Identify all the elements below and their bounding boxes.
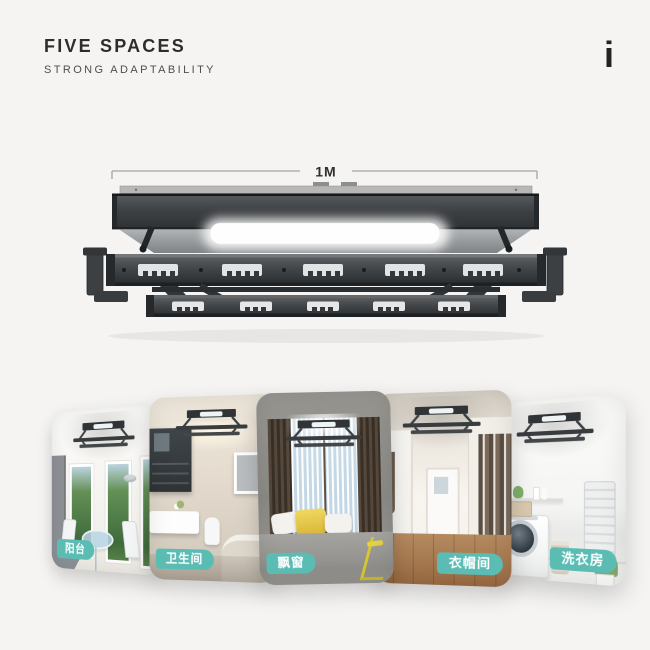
drying-rack-icon — [401, 405, 483, 438]
small-plant — [513, 486, 523, 498]
drying-rack-icon — [174, 408, 249, 439]
pillow-yellow — [295, 508, 328, 536]
product-render: 1M — [0, 158, 650, 348]
lower-hanger-bar — [146, 295, 506, 317]
drying-rack-icon — [515, 411, 596, 447]
ceiling-mount — [120, 182, 532, 194]
drying-rack-illustration: 1M — [0, 158, 650, 348]
drying-rack-icon — [72, 420, 136, 452]
folding-chair-right — [122, 521, 140, 559]
sink-counter — [150, 511, 199, 534]
table-leg — [95, 546, 97, 571]
space-label-badge: 洗衣房 — [550, 547, 616, 574]
space-label-badge: 卫生间 — [156, 548, 214, 570]
ground-shadow — [108, 329, 544, 343]
space-card-balcony: 阳台 — [52, 404, 160, 576]
space-card-cloakroom: 衣帽间 — [374, 390, 511, 588]
led-light-panel — [203, 218, 449, 250]
cabinet-shelves — [152, 455, 189, 484]
dimension-label: 1M — [315, 164, 336, 180]
page-subtitle: STRONG ADAPTABILITY — [44, 64, 216, 76]
door-window — [433, 476, 449, 495]
header-titles: FIVE SPACES STRONG ADAPTABILITY — [44, 36, 216, 76]
hanging-clothes-right — [478, 434, 511, 539]
wall-lamp — [124, 474, 137, 482]
promo-page: FIVE SPACES STRONG ADAPTABILITY i — [0, 0, 650, 650]
flower-vase — [177, 501, 184, 509]
brand-logo: i — [604, 40, 614, 71]
space-label-badge: 阳台 — [57, 538, 94, 560]
plant-pot — [596, 574, 615, 587]
toilet — [205, 517, 220, 545]
upper-hanger-bar — [106, 254, 546, 286]
drying-rack-icon — [284, 419, 365, 451]
pillow-white-right — [325, 513, 352, 533]
page-title: FIVE SPACES — [44, 36, 216, 57]
detergent-bottles — [533, 487, 540, 501]
towel-radiator — [584, 481, 616, 559]
space-card-bay-window: 飘窗 — [256, 391, 394, 586]
cabinet-mirror — [154, 433, 169, 452]
header: FIVE SPACES STRONG ADAPTABILITY i — [44, 36, 614, 76]
spaces-card-fan: 阳台 卫生间 — [0, 386, 650, 611]
towel-stack — [510, 501, 532, 517]
space-label-badge: 飘窗 — [266, 552, 315, 575]
space-label-badge: 衣帽间 — [438, 552, 503, 576]
